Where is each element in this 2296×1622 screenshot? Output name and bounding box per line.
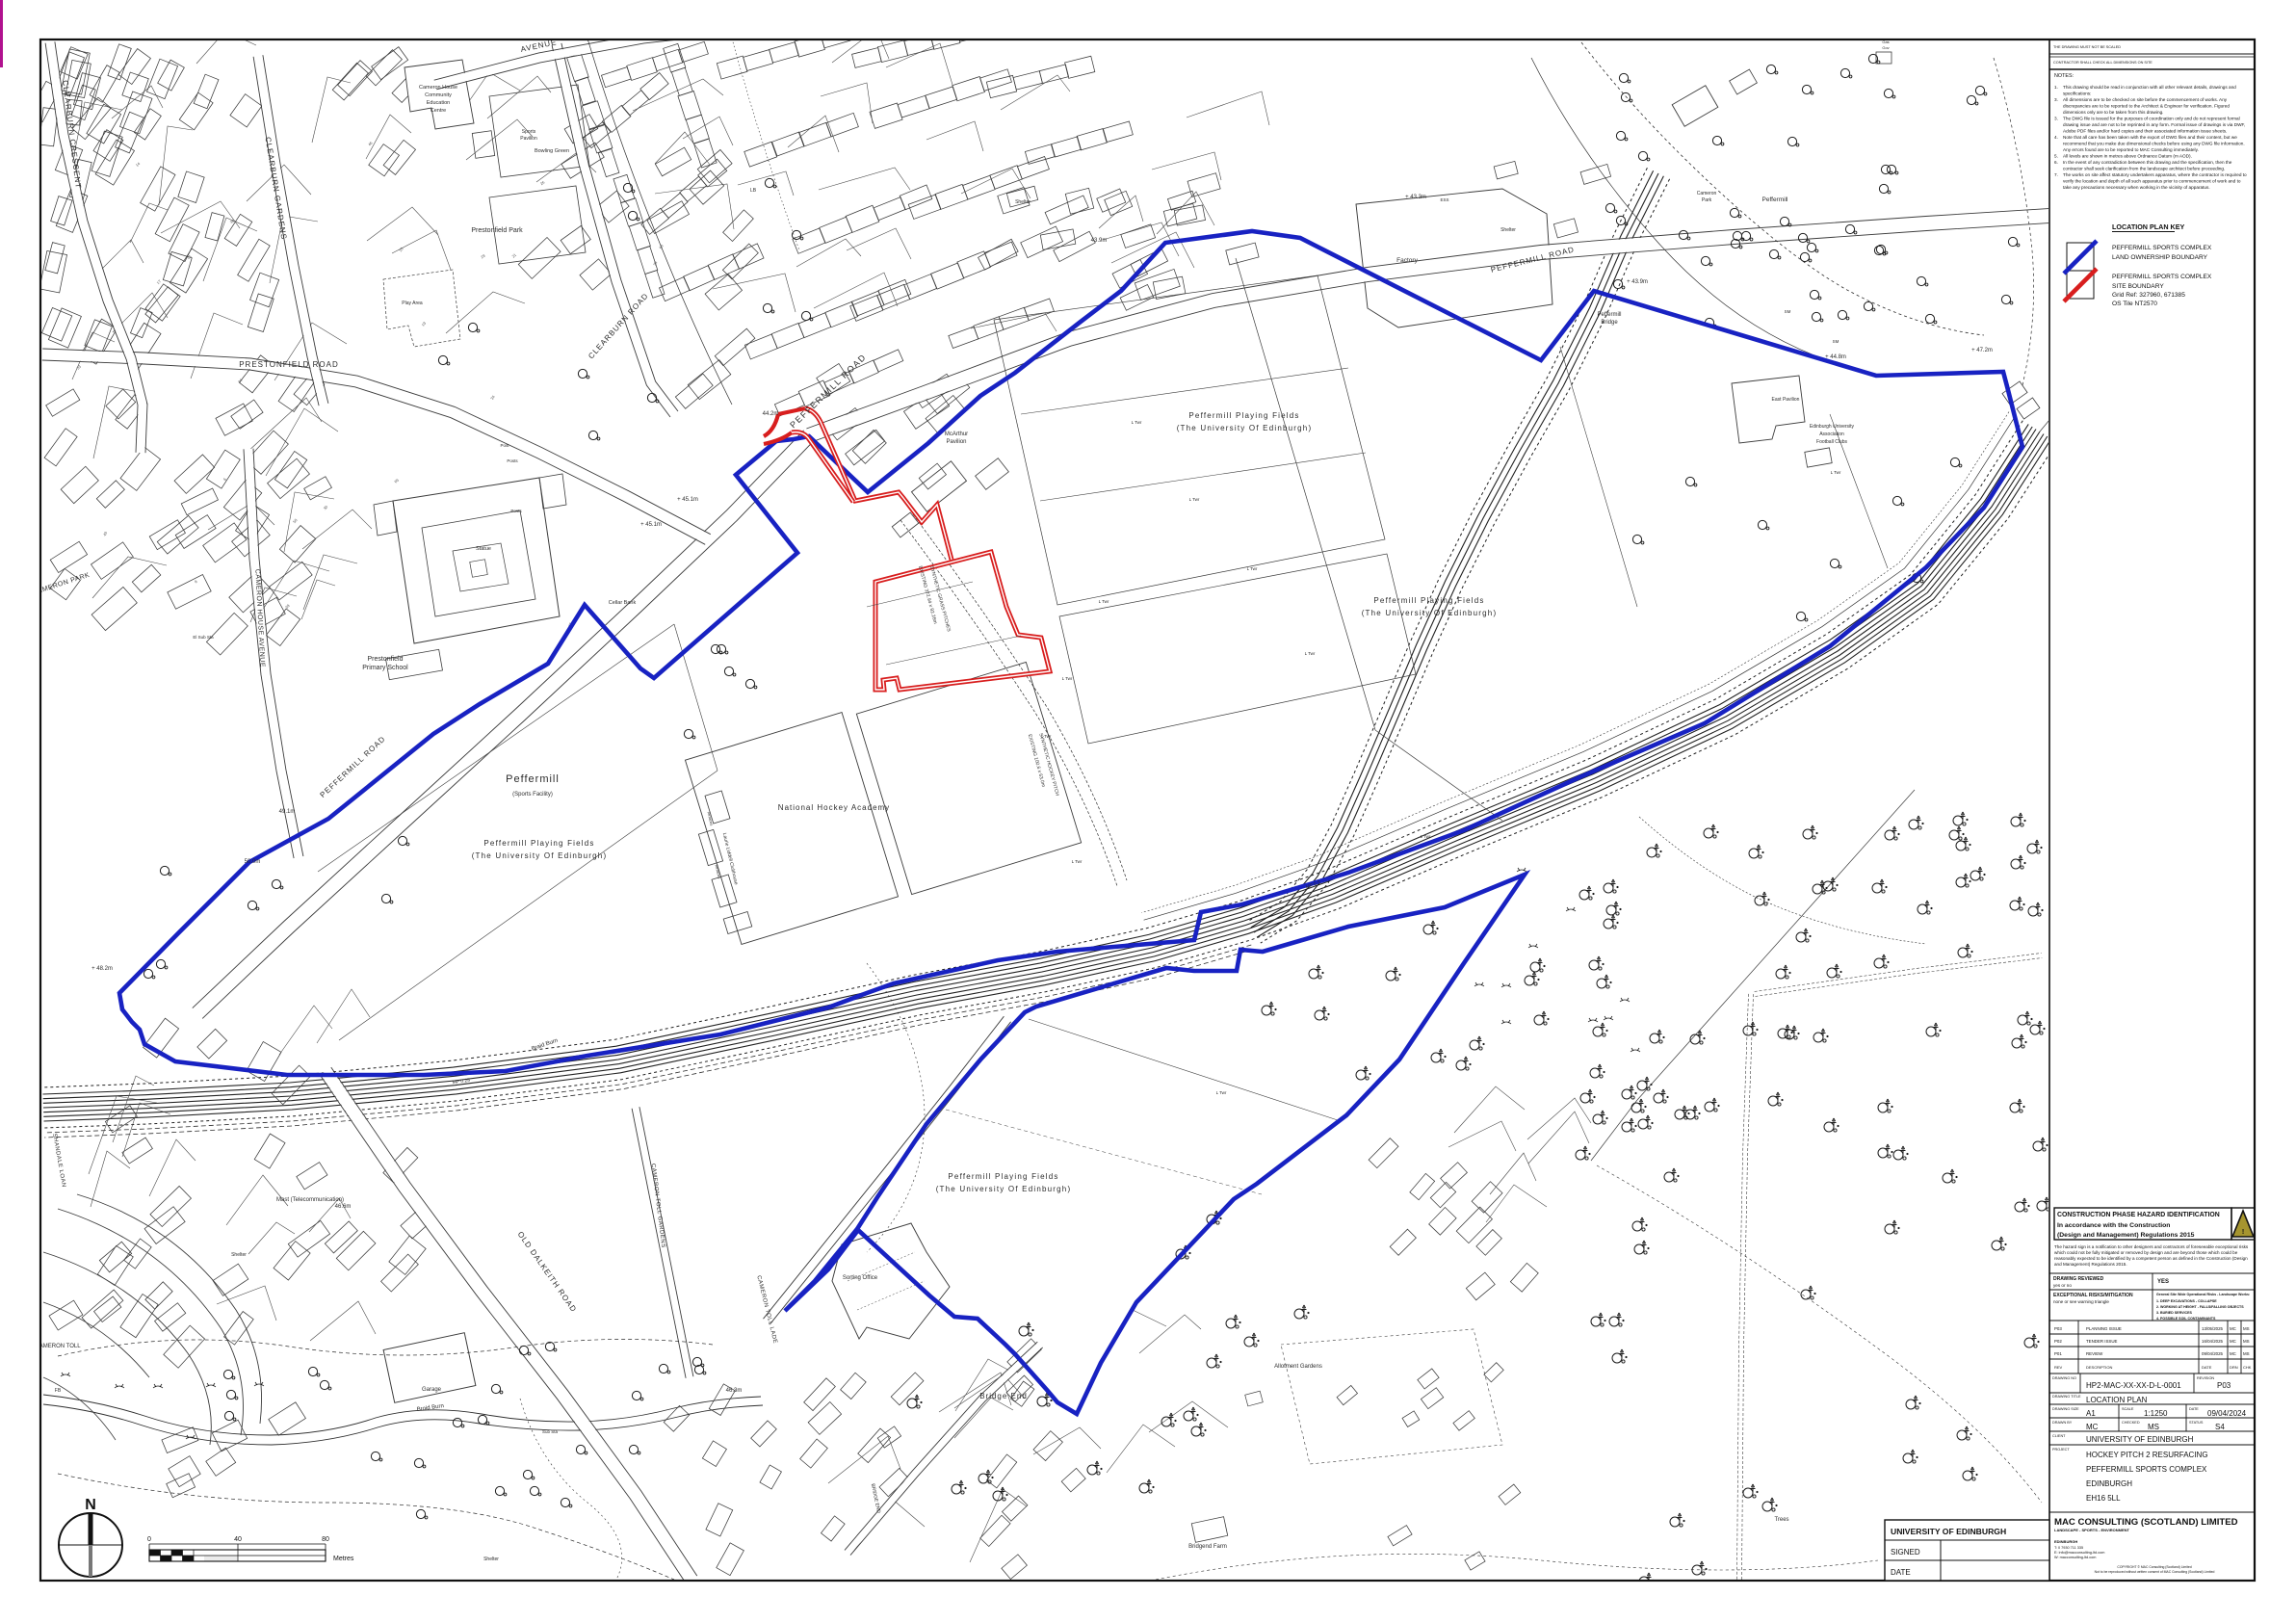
svg-text:CHK: CHK: [2243, 1365, 2252, 1370]
svg-text:PEFFERMILL SPORTS COMPLEX: PEFFERMILL SPORTS COMPLEX: [2086, 1465, 2207, 1474]
svg-text:General Site Wide Operational: General Site Wide Operational Risks - La…: [2156, 1293, 2250, 1296]
svg-text:44.2m: 44.2m: [763, 411, 779, 417]
svg-text:Football Clubs: Football Clubs: [1816, 439, 1847, 445]
svg-text:Posts: Posts: [510, 509, 522, 513]
svg-text:specifications:: specifications:: [2063, 92, 2091, 96]
svg-text:SM: SM: [1833, 339, 1839, 344]
svg-text:Allotment Gardens: Allotment Gardens: [1274, 1364, 1322, 1370]
svg-text:Mast (Telecommunication): Mast (Telecommunication): [276, 1197, 344, 1203]
svg-text:Association: Association: [1819, 432, 1844, 437]
svg-text:take any precautions necessary: take any precautions necessary when work…: [2063, 185, 2210, 190]
svg-text:L Twr: L Twr: [1421, 834, 1431, 839]
svg-text:4.: 4.: [2054, 135, 2058, 140]
svg-text:E: info@macconsulting-ltd.com: E: info@macconsulting-ltd.com: [2054, 1551, 2104, 1555]
svg-text:L Twr: L Twr: [1831, 470, 1841, 475]
svg-text:MP 0.25: MP 0.25: [452, 1078, 470, 1086]
svg-text:Statue: Statue: [476, 546, 491, 552]
svg-text:LOCATION PLAN: LOCATION PLAN: [2086, 1396, 2148, 1404]
svg-text:A1: A1: [2086, 1409, 2096, 1418]
svg-text:Bridgend Farm: Bridgend Farm: [1188, 1544, 1227, 1550]
svg-text:EH16 5LL: EH16 5LL: [2086, 1494, 2121, 1503]
svg-text:Grid Ref: 327960, 671385: Grid Ref: 327960, 671385: [2112, 292, 2185, 299]
svg-text:L Twr: L Twr: [1041, 734, 1052, 739]
svg-text:discrepancies are to be report: discrepancies are to be reported to the …: [2063, 104, 2230, 109]
svg-text:Pavilion: Pavilion: [946, 439, 966, 445]
svg-text:L Twr: L Twr: [1072, 859, 1083, 864]
svg-text:Sub Sta: Sub Sta: [542, 1429, 559, 1434]
svg-text:4. POSSIBLE SOIL CONTAMINAN: 4. POSSIBLE SOIL CONTAMINANTS: [2156, 1317, 2216, 1321]
svg-text:34: 34: [489, 394, 496, 401]
svg-text:1.: 1.: [2054, 85, 2058, 90]
svg-text:EDINBURGH: EDINBURGH: [2086, 1479, 2132, 1488]
svg-text:THE DRAWING MUST NOT BE SCALED: THE DRAWING MUST NOT BE SCALED: [2053, 45, 2121, 49]
svg-text:contractor shall seek clarific: contractor shall seek clarification from…: [2063, 167, 2225, 171]
svg-text:LOCATION PLAN KEY: LOCATION PLAN KEY: [2112, 222, 2185, 231]
svg-text:Edinburgh University: Edinburgh University: [1810, 424, 1855, 430]
svg-text:L Twr: L Twr: [1216, 1090, 1227, 1095]
svg-text:which could not be fully mitig: which could not be fully mitigated or re…: [2054, 1250, 2238, 1255]
svg-text:+ 44.8m: + 44.8m: [1825, 354, 1846, 360]
svg-text:UNIVERSITY OF EDINBURGH: UNIVERSITY OF EDINBURGH: [1891, 1527, 2006, 1536]
svg-text:recommend that you make due di: recommend that you make due dimensional …: [2063, 142, 2245, 146]
svg-text:Trees: Trees: [1774, 1517, 1788, 1523]
svg-text:reasonably expected to be iden: reasonably expected to be identified by …: [2054, 1256, 2248, 1261]
svg-text:This drawing should be read in: This drawing should be read in conjuncti…: [2063, 85, 2236, 90]
svg-text:09/04/2025: 09/04/2025: [2202, 1351, 2224, 1356]
svg-text:49.1m: 49.1m: [279, 809, 296, 815]
svg-text:Cameron: Cameron: [1697, 191, 1717, 196]
svg-text:19: 19: [420, 321, 427, 327]
svg-text:DATE: DATE: [2202, 1365, 2212, 1370]
svg-text:(The University Of Edinburg: (The University Of Edinburgh): [472, 851, 608, 860]
svg-text:SHANDALE LOAN: SHANDALE LOAN: [51, 1133, 66, 1188]
svg-text:Factory: Factory: [1396, 257, 1418, 264]
svg-text:39: 39: [652, 260, 659, 267]
svg-text:verify the location and depth: verify the location and depth of all suc…: [2063, 179, 2241, 184]
svg-text:MC: MC: [2230, 1339, 2236, 1344]
svg-text:LANDSCAPE - SPORTS - ENVIRONME: LANDSCAPE - SPORTS - ENVIRONMENT: [2054, 1528, 2130, 1532]
svg-text:The DWG file is issued for the: The DWG file is issued for the purposes …: [2063, 117, 2240, 121]
svg-text:STATUS: STATUS: [2189, 1421, 2204, 1425]
svg-text:MS: MS: [2148, 1423, 2159, 1431]
svg-text:Shelter: Shelter: [231, 1252, 247, 1258]
svg-text:TENDER ISSUE: TENDER ISSUE: [2086, 1339, 2118, 1344]
svg-text:P03: P03: [2054, 1326, 2062, 1331]
svg-text:Pavilion: Pavilion: [520, 136, 537, 142]
svg-text:DRN: DRN: [2230, 1365, 2238, 1370]
svg-text:REV: REV: [2054, 1365, 2063, 1370]
svg-text:MAC CONSULTING (SCOTLAND) LIMI: MAC CONSULTING (SCOTLAND) LIMITED: [2054, 1517, 2238, 1528]
svg-text:OLD DALKEITH ROAD: OLD DALKEITH ROAD: [516, 1230, 579, 1314]
svg-text:DRAWING SIZE: DRAWING SIZE: [2052, 1407, 2079, 1411]
svg-text:13/05/2025: 13/05/2025: [2202, 1326, 2224, 1331]
svg-text:dimensions only are to be take: dimensions only are to be taken from thi…: [2063, 110, 2163, 115]
svg-text:Gov: Gov: [1882, 45, 1889, 50]
svg-text:46.3m: 46.3m: [726, 1388, 743, 1394]
svg-text:East Pavilion: East Pavilion: [1772, 397, 1800, 403]
svg-text:46.6m: 46.6m: [335, 1204, 352, 1210]
svg-text:Posts: Posts: [507, 458, 518, 463]
svg-text:EDINBURGH: EDINBURGH: [2054, 1539, 2077, 1544]
svg-text:20: 20: [398, 246, 404, 252]
svg-text:YES: YES: [2157, 1279, 2169, 1285]
svg-text:Garage: Garage: [422, 1387, 442, 1393]
svg-text:LAND OWNERSHIP BOUNDARY: LAND OWNERSHIP BOUNDARY: [2112, 254, 2208, 261]
svg-text:Not to be reproduced without w: Not to be reproduced without written con…: [2095, 1570, 2215, 1574]
svg-text:!: !: [2242, 1229, 2244, 1236]
svg-text:Education: Education: [427, 100, 450, 106]
svg-text:T: 0 7930 711 335: T: 0 7930 711 335: [2054, 1546, 2083, 1550]
svg-text:McArthur: McArthur: [945, 432, 968, 437]
svg-text:REVISION: REVISION: [2197, 1376, 2214, 1380]
svg-text:14: 14: [135, 161, 142, 168]
svg-text:0: 0: [147, 1536, 151, 1543]
svg-text:DATE: DATE: [1891, 1568, 1911, 1577]
svg-text:69: 69: [393, 477, 400, 484]
svg-text:Prestonfield: Prestonfield: [368, 656, 404, 663]
svg-text:L Twr: L Twr: [1189, 497, 1200, 502]
svg-text:+ 45.1m: + 45.1m: [677, 497, 698, 503]
svg-text:CAMERON TOLL: CAMERON TOLL: [35, 1344, 81, 1349]
svg-text:Sports: Sports: [522, 129, 536, 135]
svg-text:(Design and Management) Regula: (Design and Management) Regulations 2015: [2057, 1232, 2195, 1239]
svg-text:MC: MC: [2230, 1351, 2236, 1356]
svg-text:MS: MS: [2243, 1351, 2250, 1356]
svg-text:40: 40: [234, 1536, 242, 1543]
svg-text:Prestonfield Park: Prestonfield Park: [471, 227, 523, 234]
svg-text:Peffermill: Peffermill: [506, 773, 560, 785]
svg-text:2. WORKING AT HEIGHT - FALL: 2. WORKING AT HEIGHT - FALLS/FALLING OBJ…: [2156, 1305, 2244, 1309]
svg-text:PLANNING ISSUE: PLANNING ISSUE: [2086, 1326, 2122, 1331]
svg-text:Peffermill: Peffermill: [1598, 312, 1622, 318]
svg-text:DRAWING REVIEWED: DRAWING REVIEWED: [2053, 1276, 2104, 1282]
svg-text:Broid Burn: Broid Burn: [416, 1403, 444, 1413]
svg-text:6.: 6.: [2054, 160, 2058, 165]
svg-text:+ 45.1m: + 45.1m: [640, 522, 662, 528]
svg-text:All dimensions are to be check: All dimensions are to be checked on site…: [2063, 97, 2228, 102]
svg-text:OS Tile NT2570: OS Tile NT2570: [2112, 301, 2157, 307]
svg-text:1:1250: 1:1250: [2144, 1409, 2168, 1418]
svg-text:09/04/2024: 09/04/2024: [2207, 1409, 2247, 1418]
svg-text:Post: Post: [500, 443, 509, 448]
svg-text:All levels are shown in metres: All levels are shown in metres above Ord…: [2063, 154, 2192, 159]
svg-text:REVIEW: REVIEW: [2086, 1351, 2103, 1356]
svg-text:SM: SM: [1785, 309, 1791, 314]
svg-text:L Twr: L Twr: [1062, 676, 1073, 681]
svg-text:Any errors found are to be rep: Any errors found are to be reported to M…: [2063, 147, 2199, 152]
svg-text:MC: MC: [2230, 1326, 2236, 1331]
svg-text:The works on site affect statu: The works on site affect statutory under…: [2063, 172, 2247, 177]
svg-text:Centre: Centre: [430, 108, 447, 114]
svg-text:21: 21: [510, 252, 517, 259]
svg-text:PROJECT: PROJECT: [2052, 1448, 2070, 1452]
svg-text:Primary School: Primary School: [362, 665, 408, 671]
svg-text:ESS: ESS: [1440, 197, 1448, 202]
svg-text:Community: Community: [425, 92, 452, 98]
svg-text:DESCRIPTION: DESCRIPTION: [2086, 1365, 2112, 1370]
svg-text:W: macconsulting-ltd.com: W: macconsulting-ltd.com: [2054, 1556, 2096, 1559]
svg-text:National Hockey Academy: National Hockey Academy: [778, 803, 890, 812]
svg-text:DRAWN BY: DRAWN BY: [2052, 1421, 2073, 1425]
svg-text:Shelter: Shelter: [1015, 199, 1031, 205]
svg-text:DRAWING NO: DRAWING NO: [2052, 1376, 2076, 1380]
svg-text:DATE: DATE: [2189, 1407, 2199, 1411]
svg-text:Peffermill Playing Fields: Peffermill Playing Fields: [483, 839, 594, 848]
svg-text:CONTRACTOR SHALL CHECK ALL DIM: CONTRACTOR SHALL CHECK ALL DIMENSIONS ON…: [2053, 61, 2152, 65]
svg-text:9: 9: [194, 579, 199, 585]
svg-text:26: 26: [539, 179, 546, 186]
svg-text:3.: 3.: [2054, 97, 2058, 102]
svg-text:Bowling Green: Bowling Green: [535, 148, 569, 154]
svg-text:Adobe PDF files and/or hard co: Adobe PDF files and/or hard copies and t…: [2063, 129, 2227, 134]
svg-text:Cellar Bank: Cellar Bank: [609, 600, 637, 606]
svg-text:+ 48.2m: + 48.2m: [91, 966, 113, 972]
svg-text:3.: 3.: [2054, 117, 2058, 121]
svg-text:16/04/2025: 16/04/2025: [2202, 1339, 2224, 1344]
svg-text:FB: FB: [55, 1388, 62, 1394]
svg-text:L Twr: L Twr: [1247, 566, 1258, 571]
svg-text:50: 50: [292, 517, 299, 524]
svg-text:P01: P01: [2054, 1351, 2062, 1356]
svg-text:drawing issue and are not to b: drawing issue and are not to be reprinte…: [2063, 122, 2245, 127]
svg-text:Sorting Office: Sorting Office: [843, 1275, 878, 1281]
svg-text:Note that all care has been ta: Note that all care has been taken with t…: [2063, 135, 2237, 140]
svg-text:DRAWING TITLE: DRAWING TITLE: [2052, 1395, 2081, 1399]
svg-text:49: 49: [102, 530, 109, 536]
svg-text:+ 47.2m: + 47.2m: [1971, 348, 1993, 353]
svg-text:P03: P03: [2217, 1381, 2231, 1390]
svg-text:yes or no: yes or no: [2053, 1283, 2072, 1288]
svg-text:7.: 7.: [2054, 172, 2058, 177]
svg-text:+ 43.3m: + 43.3m: [1405, 195, 1426, 200]
svg-text:The hazard sign is a notificat: The hazard sign is a notification to oth…: [2054, 1244, 2249, 1249]
svg-text:Braid Burn: Braid Burn: [531, 1038, 559, 1053]
svg-text:L Twr: L Twr: [1099, 599, 1109, 604]
svg-text:In accordance with the Constru: In accordance with the Construction: [2057, 1222, 2170, 1229]
svg-text:SITE BOUNDARY: SITE BOUNDARY: [2112, 283, 2164, 290]
svg-text:EXCEPTIONAL RISKS/MITIGATION: EXCEPTIONAL RISKS/MITIGATION: [2053, 1293, 2133, 1298]
svg-text:COPYRIGHT © MAC Consulting (Sc: COPYRIGHT © MAC Consulting (Scotland) Li…: [2117, 1565, 2191, 1569]
svg-text:HOCKEY PITCH 2 RESURFACING: HOCKEY PITCH 2 RESURFACING: [2086, 1451, 2208, 1459]
svg-text:In the event of any contradict: In the event of any contradiction betwee…: [2063, 160, 2232, 165]
svg-text:L Twr: L Twr: [1132, 420, 1142, 425]
svg-text:HP2-MAC-XX-XX-D-L-0001: HP2-MAC-XX-XX-D-L-0001: [2086, 1381, 2181, 1390]
svg-text:30: 30: [323, 504, 329, 510]
svg-text:1. DEEP EXCAVATIONS - COLLA: 1. DEEP EXCAVATIONS - COLLAPSE: [2156, 1299, 2217, 1303]
svg-text:L Twr: L Twr: [1305, 651, 1316, 656]
svg-text:CLIENT: CLIENT: [2052, 1434, 2066, 1438]
svg-text:43.9m: 43.9m: [1091, 238, 1108, 244]
svg-text:MS: MS: [2243, 1326, 2250, 1331]
svg-text:P02: P02: [2054, 1339, 2062, 1344]
svg-text:SCALE: SCALE: [2122, 1407, 2134, 1411]
svg-text:(The University Of Edinburg: (The University Of Edinburgh): [1362, 609, 1498, 617]
svg-text:Peffermill: Peffermill: [1762, 196, 1789, 203]
svg-text:MC: MC: [2086, 1423, 2099, 1431]
svg-text:(The University Of Edinburg: (The University Of Edinburgh): [936, 1185, 1072, 1193]
svg-text:Bridge End: Bridge End: [979, 1392, 1028, 1400]
svg-text:PEFFERMILL ROAD: PEFFERMILL ROAD: [319, 734, 388, 799]
svg-text:3. BURIED SERVICES: 3. BURIED SERVICES: [2156, 1311, 2192, 1315]
svg-text:Peffermill Playing Fields: Peffermill Playing Fields: [1373, 596, 1484, 605]
svg-text:El Sub Sta: El Sub Sta: [193, 635, 214, 640]
svg-text:none or see warning triangle: none or see warning triangle: [2053, 1299, 2109, 1304]
svg-text:Shelter: Shelter: [483, 1557, 499, 1562]
svg-text:+ 43.9m: + 43.9m: [1627, 279, 1648, 285]
svg-text:Shelter: Shelter: [1500, 227, 1516, 233]
svg-text:LB: LB: [750, 188, 757, 194]
svg-text:Peffermill Playing Fields: Peffermill Playing Fields: [948, 1172, 1058, 1181]
svg-text:80: 80: [322, 1536, 329, 1543]
svg-text:Cameron House: Cameron House: [419, 85, 457, 91]
svg-text:CONSTRUCTION PHASE HAZARD IDEN: CONSTRUCTION PHASE HAZARD IDENTIFICATION: [2057, 1212, 2220, 1218]
svg-text:SIGNED: SIGNED: [1891, 1548, 1920, 1557]
svg-text:PEFFERMILL SPORTS COMPLEX: PEFFERMILL SPORTS COMPLEX: [2112, 245, 2212, 251]
svg-text:28: 28: [480, 252, 486, 259]
svg-text:5.: 5.: [2054, 154, 2058, 159]
svg-text:(Sports Facility): (Sports Facility): [512, 792, 553, 798]
svg-text:PEFFERMILL SPORTS COMPLEX: PEFFERMILL SPORTS COMPLEX: [2112, 274, 2212, 280]
svg-text:UNIVERSITY OF EDINBURGH: UNIVERSITY OF EDINBURGH: [2086, 1435, 2194, 1444]
svg-text:(The University Of Edinburg: (The University Of Edinburgh): [1177, 424, 1313, 432]
svg-text:Park: Park: [1702, 197, 1712, 203]
svg-text:and Management) Regulations 20: and Management) Regulations 2015.: [2054, 1262, 2127, 1267]
svg-text:PRESTONFIELD ROAD: PRESTONFIELD ROAD: [239, 360, 339, 369]
svg-text:Peffermill Playing Fields: Peffermill Playing Fields: [1188, 411, 1299, 420]
svg-text:Play Area: Play Area: [402, 301, 423, 306]
svg-text:NOTES:: NOTES:: [2054, 73, 2074, 79]
svg-text:17: 17: [155, 278, 162, 285]
svg-text:N: N: [85, 1497, 96, 1513]
svg-text:50.0m: 50.0m: [245, 859, 261, 865]
svg-text:CHECKED: CHECKED: [2122, 1421, 2140, 1425]
svg-text:38: 38: [284, 603, 291, 610]
svg-text:Metres: Metres: [333, 1556, 354, 1562]
svg-text:33: 33: [75, 363, 82, 370]
svg-text:S4: S4: [2215, 1423, 2225, 1431]
svg-text:Bridge: Bridge: [1601, 320, 1618, 326]
svg-text:MS: MS: [2243, 1339, 2250, 1344]
